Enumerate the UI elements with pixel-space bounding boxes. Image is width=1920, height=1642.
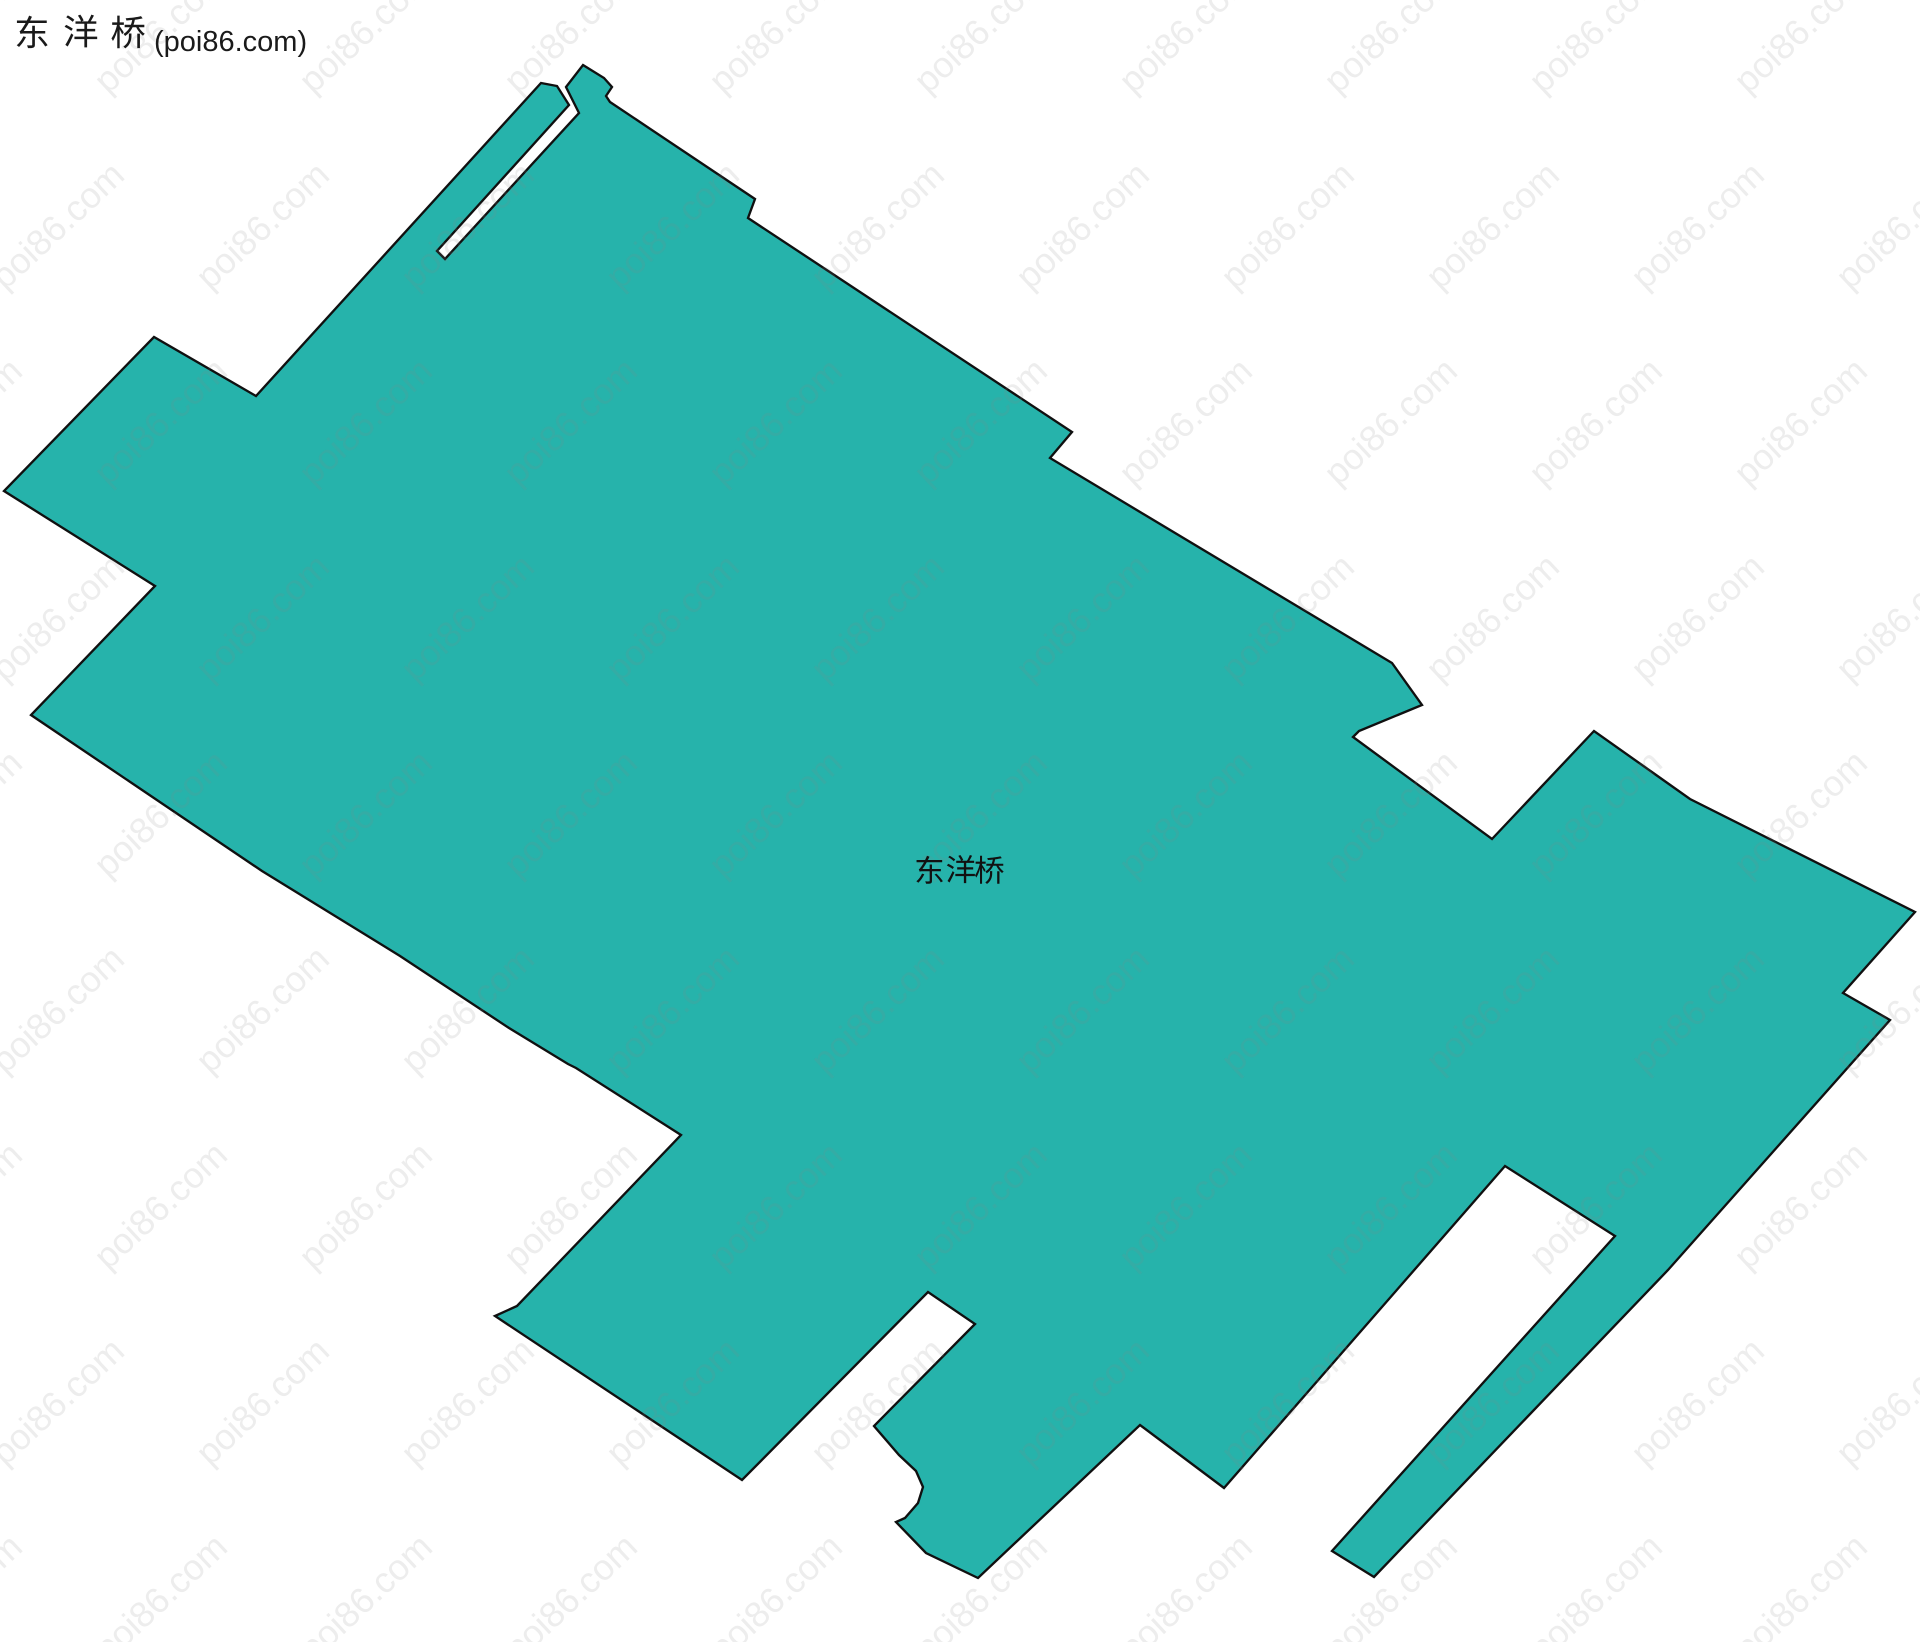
svg-text:(poi86.com): (poi86.com) xyxy=(154,26,307,58)
